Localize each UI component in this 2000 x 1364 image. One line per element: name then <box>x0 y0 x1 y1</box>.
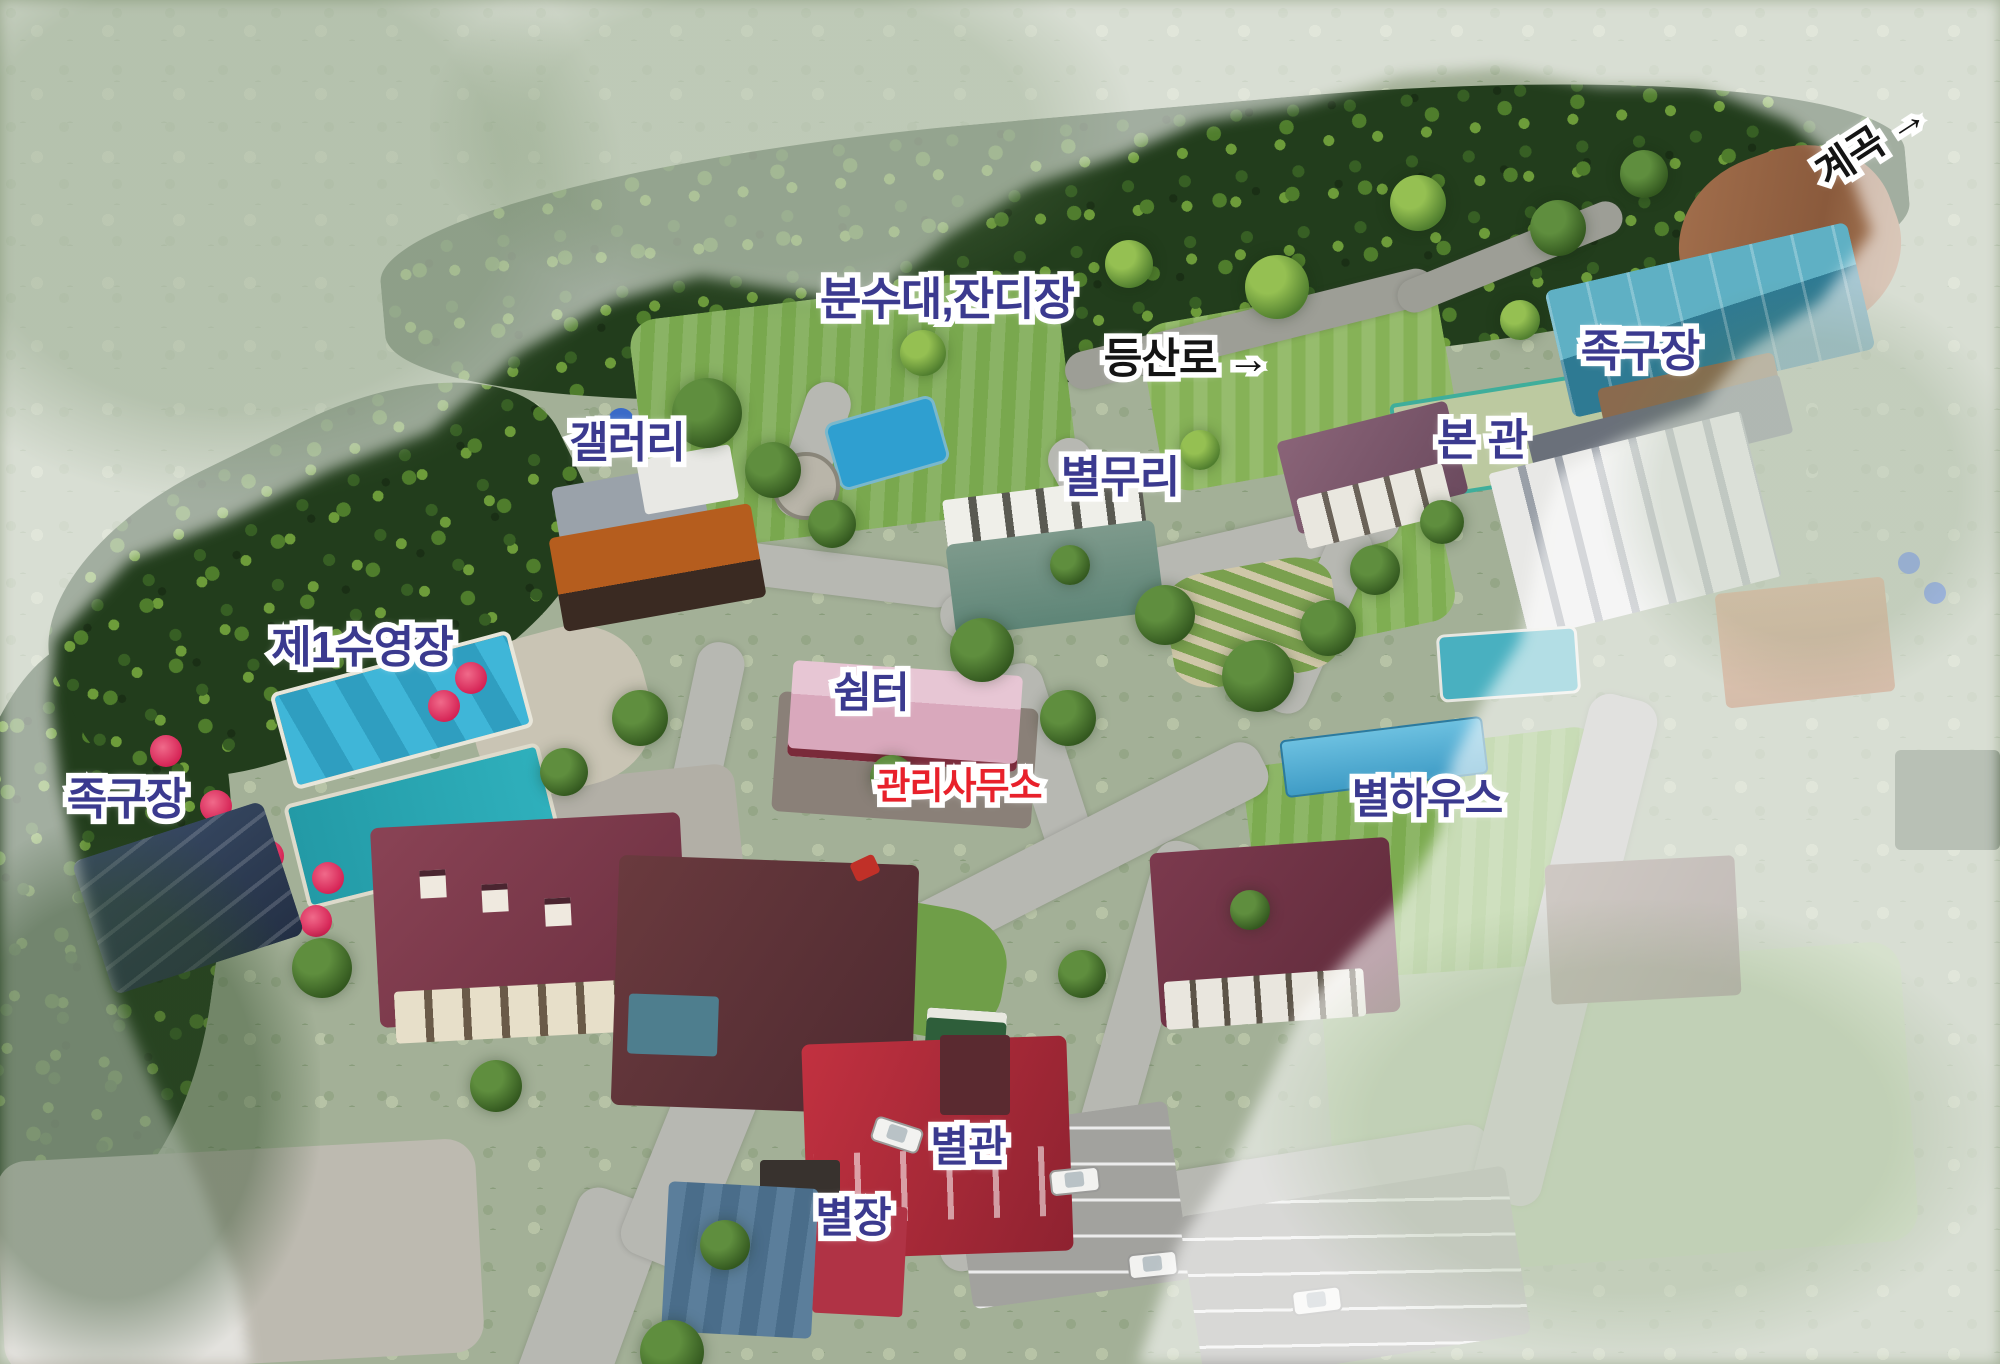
label-hiking-trail: 등산로 →등산로 → <box>1104 338 1269 380</box>
label-villa: 별장별장 <box>815 1197 890 1239</box>
label-fountain-lawn: 분수대,잔디장분수대,잔디장 <box>820 277 1074 322</box>
label-text: 별무리 <box>1061 453 1179 502</box>
label-text: 갤러리 <box>569 420 685 468</box>
label-text: 족구장 <box>1581 327 1699 376</box>
label-text: 별장 <box>815 1194 890 1241</box>
haze-tint <box>430 0 1130 320</box>
label-text: 관리사무소 <box>876 766 1041 807</box>
label-text: 본 관 <box>1437 416 1527 465</box>
haze-tint <box>0 820 320 1364</box>
resort-aerial-map: 분수대,잔디장분수대,잔디장 등산로 →등산로 → 계곡 →계곡 → 족구장족구… <box>0 0 2000 1364</box>
label-text: 별하우스 <box>1352 775 1503 822</box>
label-text: 등산로 → <box>1104 335 1269 382</box>
label-gallery: 갤러리갤러리 <box>569 423 685 466</box>
label-pool1: 제1수영장제1수영장 <box>271 626 452 670</box>
label-text: 족구장 <box>67 775 185 824</box>
label-text: 쉼터 <box>833 669 908 716</box>
label-jokgu-left: 족구장족구장 <box>67 778 185 822</box>
haze-tint <box>1260 900 2000 1360</box>
label-text: 분수대,잔디장 <box>820 274 1074 325</box>
label-text: 별관 <box>930 1123 1005 1170</box>
label-jokgu-top: 족구장족구장 <box>1581 330 1699 374</box>
label-annex: 별관별관 <box>930 1126 1005 1168</box>
label-byeolmuri: 별무리별무리 <box>1061 456 1179 500</box>
label-byeol-house: 별하우스별하우스 <box>1352 778 1503 820</box>
label-shelter: 쉼터쉼터 <box>833 672 908 714</box>
label-office: 관리사무소관리사무소 <box>876 768 1041 805</box>
label-main-hall: 본 관본 관 <box>1437 419 1527 463</box>
label-text: 제1수영장 <box>271 623 452 672</box>
